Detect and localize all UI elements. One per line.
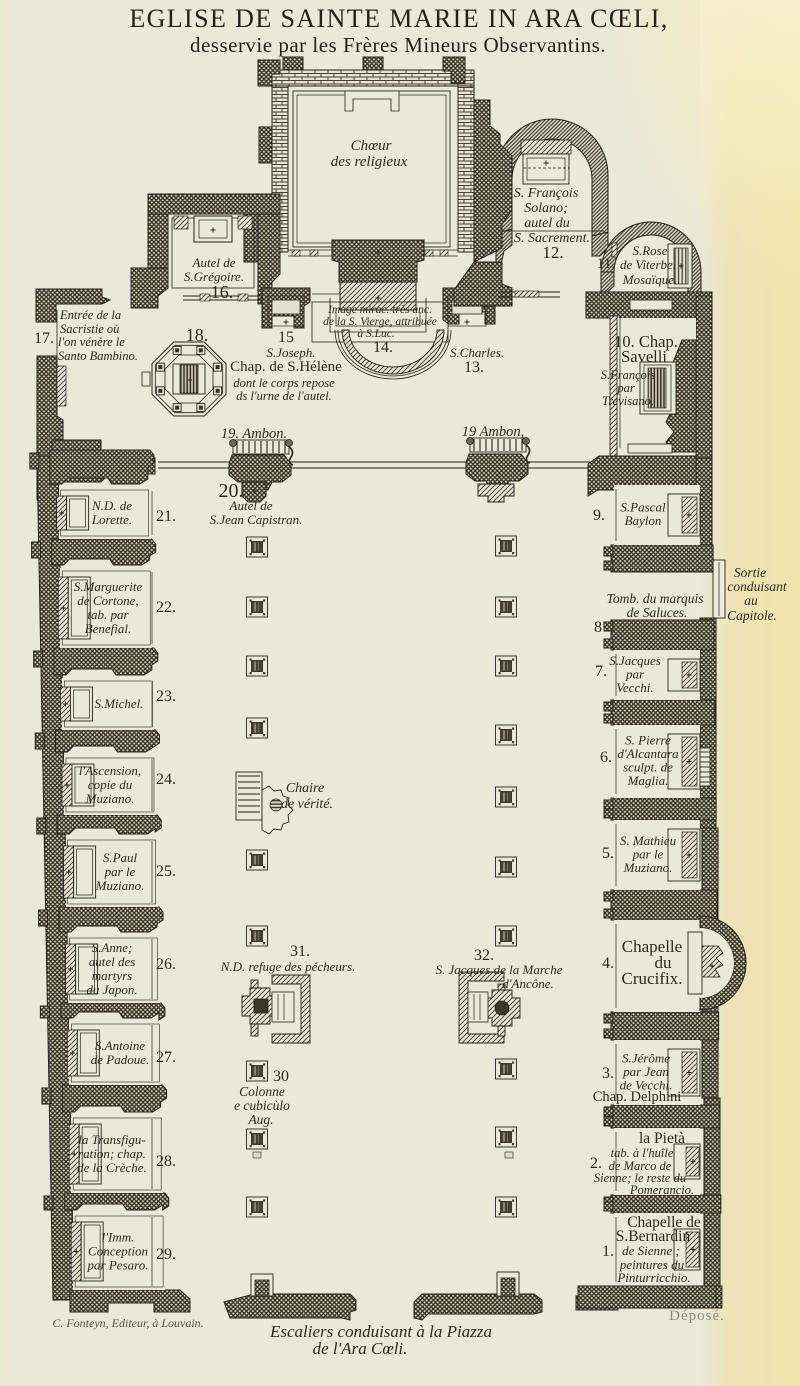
svg-text:Pinturricchio.: Pinturricchio. [616,1270,690,1285]
svg-text:des religieux: des religieux [331,154,408,170]
svg-text:19 Ambon,: 19 Ambon, [462,424,525,440]
svg-text:d'Ancône.: d'Ancône. [502,976,554,991]
svg-text:Vecchi.: Vecchi. [616,680,653,695]
svg-text:9.: 9. [593,507,605,524]
svg-text:18.: 18. [186,325,209,345]
svg-text:Aug.: Aug. [247,1112,273,1127]
svg-text:autel du: autel du [524,216,570,231]
svg-text:Muziano.: Muziano. [623,860,673,875]
svg-text:S.Jean Capistran.: S.Jean Capistran. [210,512,303,527]
svg-text:15: 15 [278,329,294,346]
svg-text:desservie par les Frères Mineu: desservie par les Frères Mineurs Observa… [190,33,606,57]
svg-text:Santo Bambino.: Santo Bambino. [58,349,138,363]
svg-text:Déposé.: Déposé. [669,1308,725,1324]
svg-text:29.: 29. [156,1246,176,1263]
svg-text:Autel de: Autel de [229,498,273,513]
svg-text:S.Michel.: S.Michel. [94,696,143,711]
svg-text:S.Charles.: S.Charles. [450,345,504,360]
svg-text:EGLISE DE SAINTE MARIE IN ARA: EGLISE DE SAINTE MARIE IN ARA CŒLI, [129,4,668,33]
svg-text:S.Anne;: S.Anne; [92,940,133,955]
svg-text:conduisant: conduisant [727,579,787,594]
svg-text:Muziano.: Muziano. [85,791,135,806]
svg-text:S.Paul: S.Paul [103,850,138,865]
svg-text:Benefial.: Benefial. [85,621,132,636]
svg-text:Lorette.: Lorette. [91,512,132,527]
svg-text:Conception: Conception [88,1244,148,1259]
svg-text:17.: 17. [34,330,54,347]
svg-text:par le: par le [104,864,136,879]
svg-text:Pomerancio.: Pomerancio. [629,1183,694,1197]
svg-text:l'Ascension,: l'Ascension, [79,763,141,778]
svg-text:Solano;: Solano; [524,201,568,216]
svg-text:11.: 11. [597,256,615,272]
svg-text:S. Jacques de la Marche: S. Jacques de la Marche [436,962,563,977]
svg-text:27.: 27. [156,1049,176,1066]
svg-text:Maglia.: Maglia. [627,773,669,788]
svg-text:Savelli: Savelli [621,347,667,366]
svg-text:13.: 13. [464,359,484,376]
svg-text:tab. par: tab. par [87,607,129,622]
svg-text:Baylon: Baylon [625,513,662,528]
svg-text:Mosaïque.: Mosaïque. [622,272,678,287]
svg-text:Trevisano.: Trevisano. [602,394,654,408]
svg-text:dont le corps repose: dont le corps repose [233,376,335,390]
svg-text:4.: 4. [602,955,614,972]
svg-text:14.: 14. [373,339,393,356]
svg-text:Capitole.: Capitole. [727,608,777,623]
svg-text:28.: 28. [156,1153,176,1170]
svg-text:l'Imm.: l'Imm. [102,1230,135,1245]
svg-text:e cubicùlo: e cubicùlo [234,1098,290,1113]
svg-text:N.D. refuge des pécheurs.: N.D. refuge des pécheurs. [220,959,356,974]
svg-text:Tomb. du marquis: Tomb. du marquis [607,591,704,606]
svg-text:ration; chap.: ration; chap. [78,1146,146,1161]
svg-text:Entrée de la: Entrée de la [59,308,121,322]
svg-text:Autel de: Autel de [192,255,236,270]
svg-text:Sacristie où: Sacristie où [60,322,119,336]
svg-text:6.: 6. [600,749,612,766]
svg-text:24.: 24. [156,771,176,788]
svg-text:30: 30 [273,1068,289,1085]
svg-text:Chap. de S.Hélène: Chap. de S.Hélène [230,359,342,375]
svg-text:Sortie: Sortie [734,565,766,580]
svg-text:au: au [744,593,758,608]
svg-text:la Pietà: la Pietà [639,1130,685,1147]
svg-text:25.: 25. [156,863,176,880]
svg-text:de Padoue.: de Padoue. [91,1052,149,1067]
svg-text:21.: 21. [156,508,176,525]
svg-text:S.Joseph.: S.Joseph. [266,345,315,360]
svg-text:de Saluces.: de Saluces. [627,605,688,620]
svg-text:l'on vénère le: l'on vénère le [58,335,125,349]
svg-text:22.: 22. [156,599,176,616]
svg-text:autel des: autel des [89,954,136,969]
svg-text:de l'Ara Cœli.: de l'Ara Cœli. [313,1339,408,1358]
svg-text:ds l'urne de l'autel.: ds l'urne de l'autel. [236,389,332,403]
svg-text:23.: 23. [156,688,176,705]
svg-text:Crucifix.: Crucifix. [622,969,683,988]
svg-text:S.Marguerite: S.Marguerite [74,579,143,594]
svg-text:la Transfigu-: la Transfigu- [78,1132,146,1147]
svg-text:3.: 3. [602,1065,614,1082]
svg-text:S.François: S.François [601,368,656,382]
svg-text:S.Antoine: S.Antoine [95,1038,145,1053]
svg-text:16.: 16. [211,282,234,302]
svg-text:Chapelle: Chapelle [622,937,682,956]
svg-text:26.: 26. [156,956,176,973]
svg-text:Colonne: Colonne [239,1084,285,1099]
svg-text:de Sienne ;: de Sienne ; [622,1243,680,1258]
svg-text:du Japon.: du Japon. [86,982,137,997]
svg-text:martyrs: martyrs [92,968,132,983]
svg-text:Chaire: Chaire [286,781,324,796]
svg-text:7.: 7. [595,663,607,680]
svg-text:31.: 31. [290,943,310,960]
svg-text:de Viterbe.: de Viterbe. [620,257,676,272]
svg-text:Chœur: Chœur [351,138,392,154]
svg-text:copie du: copie du [88,777,133,792]
svg-text:Image mirac. très anc.: Image mirac. très anc. [327,304,432,316]
svg-text:S. François: S. François [514,186,579,201]
svg-text:de la Crèche.: de la Crèche. [77,1160,147,1175]
svg-text:par: par [616,381,635,395]
svg-text:8: 8 [594,619,602,636]
svg-text:2.: 2. [590,1155,602,1172]
svg-text:de la S. Vierge, attribuée: de la S. Vierge, attribuée [323,316,437,328]
svg-text:par Pesaro.: par Pesaro. [87,1258,149,1273]
svg-text:de Cortone,: de Cortone, [77,593,138,608]
svg-text:19. Ambon.: 19. Ambon. [221,426,287,442]
svg-text:tab. à l'huîle: tab. à l'huîle [611,1146,674,1160]
svg-text:N.D. de: N.D. de [91,498,132,513]
svg-text:S.Rose: S.Rose [632,243,667,258]
svg-text:Chap. Delphini: Chap. Delphini [593,1089,682,1105]
svg-text:Muziano.: Muziano. [95,878,145,893]
svg-text:C. Fonteyn, Editeur, à Louvain: C. Fonteyn, Editeur, à Louvain. [52,1316,203,1330]
svg-text:12.: 12. [542,243,563,262]
svg-text:de vérité.: de vérité. [281,797,333,812]
svg-text:1.: 1. [602,1243,614,1260]
svg-text:5.: 5. [602,845,614,862]
